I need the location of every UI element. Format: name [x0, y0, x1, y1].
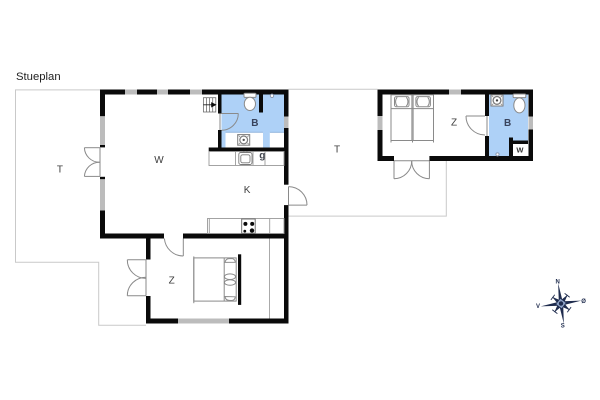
svg-text:T: T	[334, 144, 340, 155]
svg-text:S: S	[561, 324, 565, 330]
svg-text:W: W	[516, 146, 524, 155]
svg-text:T: T	[57, 165, 63, 176]
svg-text:g: g	[259, 151, 265, 162]
svg-text:K: K	[244, 185, 251, 196]
svg-text:Stueplan: Stueplan	[16, 71, 61, 83]
svg-text:B: B	[251, 118, 258, 129]
svg-text:Z: Z	[451, 118, 457, 129]
svg-text:W: W	[154, 155, 164, 166]
svg-text:N: N	[556, 279, 560, 285]
svg-text:B: B	[504, 118, 511, 129]
svg-text:Z: Z	[169, 275, 175, 286]
svg-text:Ø: Ø	[581, 299, 586, 305]
svg-text:V: V	[536, 304, 540, 310]
